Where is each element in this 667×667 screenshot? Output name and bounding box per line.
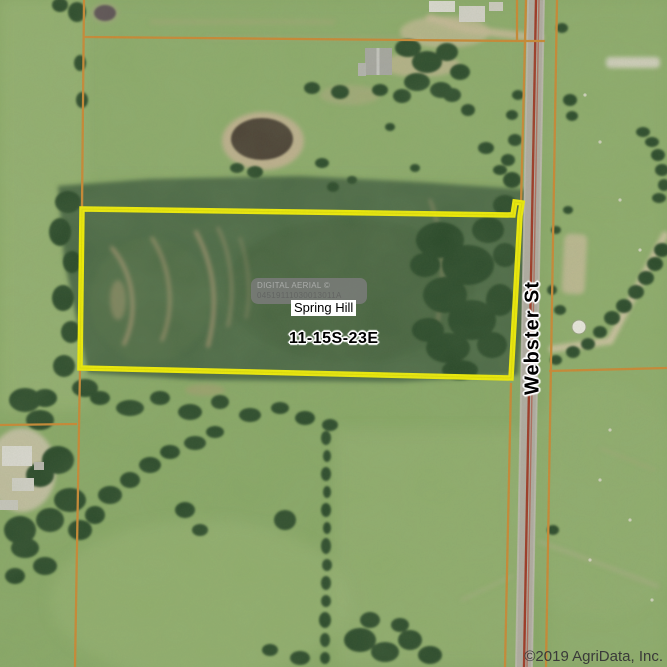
copyright-label: ©2019 AgriData, Inc. (524, 648, 663, 665)
field-name-label: Spring Hill (291, 300, 356, 316)
watermark-line1: DIGITAL AERIAL © (257, 281, 361, 291)
road-name-label: Webster St (522, 281, 545, 395)
map-container[interactable]: DIGITAL AERIAL © 04519111030013011A Spri… (0, 0, 667, 667)
section-township-range-label: 11-15S-23E (289, 330, 379, 348)
